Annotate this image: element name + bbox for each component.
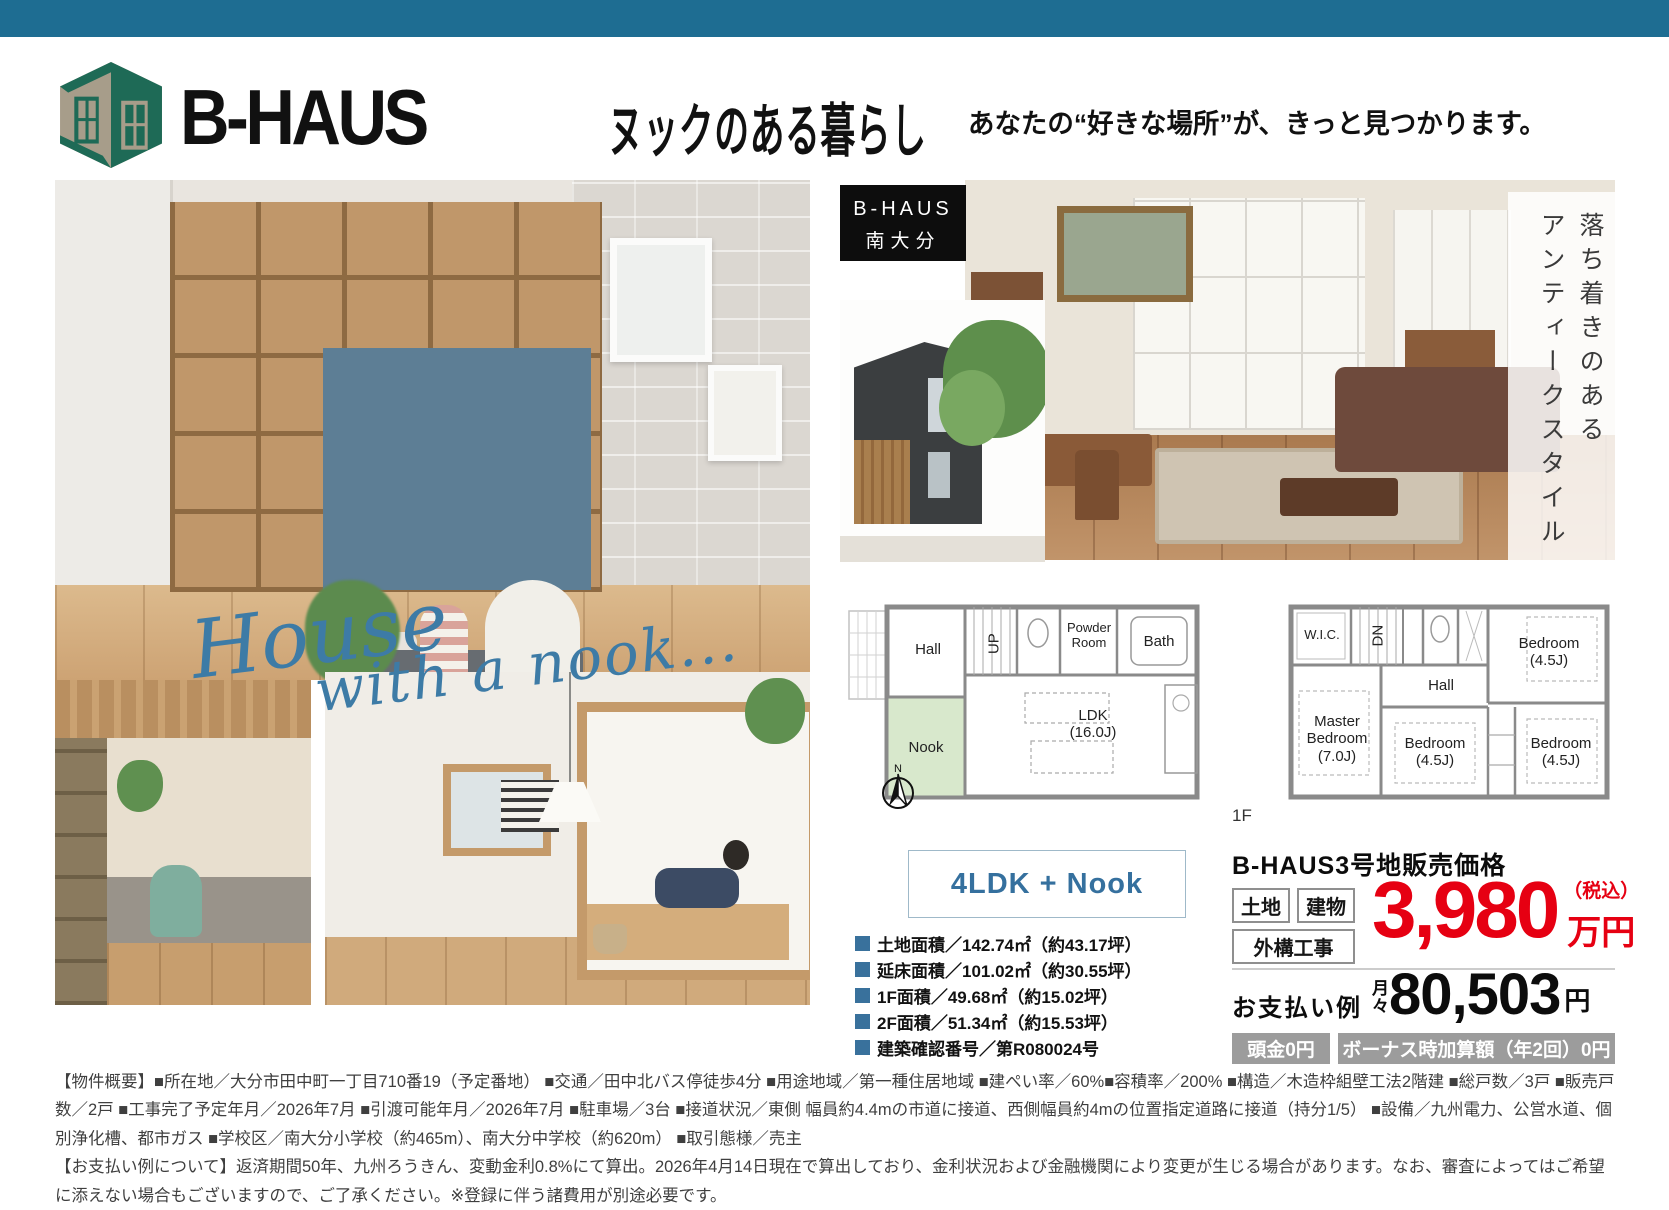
property-overview-text: 【物件概要】■所在地／大分市田中町一丁目710番19（予定番地） ■交通／田中北… xyxy=(55,1068,1617,1153)
lamp-cord-decor xyxy=(569,672,571,784)
room-label-bedroom-3-name: Bedroom xyxy=(1531,735,1592,752)
page-subtitle: あなたの“好きな場所”が、きっと見つかります。 xyxy=(968,102,1546,141)
spec-list: 土地面積／142.74㎡（約43.17坪） 延床面積／101.02㎡（約30.5… xyxy=(855,930,1155,1060)
location-badge-area: 南大分 xyxy=(840,226,966,253)
top-accent-bar xyxy=(0,0,1669,37)
person-figure-decor xyxy=(655,868,739,908)
room-label-bedroom-1-size: (4.5J) xyxy=(1530,652,1568,669)
payment-example-label: お支払い例 xyxy=(1232,988,1362,1023)
spec-item: 建築確認番号／第R080024号 xyxy=(855,1034,1155,1060)
monthly-prefix-2: 々 xyxy=(1372,997,1389,1016)
room-label-ldk-size: (16.0J) xyxy=(1070,724,1117,741)
room-label-master: MasterBedroom(7.0J) xyxy=(1295,713,1379,765)
square-bullet-icon xyxy=(855,936,870,951)
ground-decor xyxy=(840,536,1045,562)
room-label-up: UP xyxy=(985,627,1002,661)
price-side: （税込） 万円 xyxy=(1563,876,1639,954)
wood-siding-decor xyxy=(854,440,910,524)
spec-item-text: 2F面積／51.34㎡（約15.53坪） xyxy=(877,1009,1118,1034)
person-head-decor xyxy=(723,840,749,870)
room-label-master-l2: Bedroom xyxy=(1307,730,1368,747)
room-label-bedroom-3: Bedroom(4.5J) xyxy=(1519,735,1603,770)
child-figure-decor xyxy=(420,605,468,680)
room-label-bedroom-1-name: Bedroom xyxy=(1519,635,1580,652)
location-badge: B-HAUS 南大分 xyxy=(840,185,966,261)
room-label-bedroom-2: Bedroom(4.5J) xyxy=(1393,735,1477,770)
bonus-payment-badge: ボーナス時加算額（年2回）0円 xyxy=(1338,1033,1615,1064)
room-label-hall-2f: Hall xyxy=(1411,677,1471,694)
property-overview: 【物件概要】■所在地／大分市田中町一丁目710番19（予定番地） ■交通／田中北… xyxy=(55,1068,1617,1210)
blue-nook-panel-decor xyxy=(323,348,591,590)
price-unit: 万円 xyxy=(1567,905,1635,954)
room-label-powder: Powder Room xyxy=(1061,621,1117,651)
floor-decor xyxy=(107,943,311,1005)
bench-decor xyxy=(107,877,311,943)
room-label-dn: DN xyxy=(1369,619,1386,653)
page-title: ヌックのある暮らし xyxy=(608,84,927,168)
brand-text: B-HAUS xyxy=(180,72,426,163)
shelf-decor xyxy=(55,738,107,1005)
wood-ceiling-decor xyxy=(55,680,311,738)
compass-icon: N xyxy=(876,762,920,814)
style-caption-line2: アンティークスタイル xyxy=(1538,212,1563,552)
window-decor xyxy=(928,452,950,498)
price-tax-note: （税込） xyxy=(1563,876,1639,903)
room-label-bath: Bath xyxy=(1133,633,1185,650)
room-label-master-size: (7.0J) xyxy=(1318,748,1356,765)
floorplan-2f: W.I.C. DN Hall Bedroom(4.5J) MasterBedro… xyxy=(1283,595,1615,807)
plan-type-box: 4LDK + Nook xyxy=(908,850,1186,918)
spec-item: 2F面積／51.34㎡（約15.53坪） xyxy=(855,1008,1155,1034)
square-bullet-icon xyxy=(855,988,870,1003)
mother-figure-decor xyxy=(485,580,580,680)
room-label-nook: Nook xyxy=(895,739,957,756)
spec-item-text: 建築確認番号／第R080024号 xyxy=(877,1035,1099,1060)
tree-decor xyxy=(939,370,1005,446)
spec-item: 1F面積／49.68㎡（約15.02坪） xyxy=(855,982,1155,1008)
price-amount: 3,980 xyxy=(1372,872,1557,948)
photo-house-exterior xyxy=(840,300,1045,562)
down-payment-badge: 頭金0円 xyxy=(1232,1033,1330,1064)
floor-label-1f: 1F xyxy=(1232,806,1252,826)
spec-item: 土地面積／142.74㎡（約43.17坪） xyxy=(855,930,1155,956)
monthly-unit: 円 xyxy=(1564,981,1590,1018)
plant-decor xyxy=(745,678,805,744)
price-tag-building: 建物 xyxy=(1297,888,1355,923)
door-decor xyxy=(55,180,173,588)
payment-note-text: 【お支払い例について】返済期間50年、九州ろうきん、変動金利0.8%にて算出。2… xyxy=(55,1153,1617,1210)
spec-item-text: 延床面積／101.02㎡（約30.55坪） xyxy=(877,957,1142,982)
photo-reading-nook xyxy=(55,680,311,1005)
spec-item-text: 土地面積／142.74㎡（約43.17坪） xyxy=(877,931,1142,956)
room-label-bedroom-1: Bedroom(4.5J) xyxy=(1507,635,1591,670)
price-tag-land: 土地 xyxy=(1232,888,1290,923)
picture-frame-decor xyxy=(708,365,782,461)
picture-frame-decor xyxy=(610,238,712,362)
room-label-bedroom-2-size: (4.5J) xyxy=(1416,752,1454,769)
room-label-hall: Hall xyxy=(895,641,961,658)
style-caption-line1: 落ち着きのある xyxy=(1577,212,1602,450)
chair-decor xyxy=(1075,450,1119,520)
monthly-payment: 月々 80,503 円 xyxy=(1372,966,1590,1024)
square-bullet-icon xyxy=(855,1040,870,1055)
square-bullet-icon xyxy=(855,1014,870,1029)
room-label-master-l1: Master xyxy=(1314,713,1360,730)
square-bullet-icon xyxy=(855,962,870,977)
room-label-bedroom-2-name: Bedroom xyxy=(1405,735,1466,752)
monthly-prefix: 月々 xyxy=(1372,980,1389,1016)
painting-decor xyxy=(1057,206,1193,302)
coffee-table-decor xyxy=(1280,478,1398,516)
room-label-ldk-name: LDK xyxy=(1078,707,1107,724)
basket-decor xyxy=(593,924,627,954)
plan-type-label: 4LDK + Nook xyxy=(951,868,1143,901)
monthly-amount: 80,503 xyxy=(1389,966,1560,1024)
photo-nook-family xyxy=(55,180,810,680)
price-group: 3,980 （税込） 万円 xyxy=(1372,872,1639,954)
style-caption-vertical: 落ち着きのある アンティークスタイル xyxy=(1508,192,1616,560)
spec-item: 延床面積／101.02㎡（約30.55坪） xyxy=(855,956,1155,982)
plant-decor xyxy=(305,580,400,680)
monthly-prefix-1: 月 xyxy=(1372,979,1389,998)
svg-text:N: N xyxy=(894,763,902,775)
person-figure-decor xyxy=(150,865,202,937)
room-label-ldk: LDK(16.0J) xyxy=(1055,707,1131,742)
spec-item-text: 1F面積／49.68㎡（約15.02坪） xyxy=(877,983,1118,1008)
location-badge-brand: B-HAUS xyxy=(840,198,966,221)
price-tag-exterior: 外構工事 xyxy=(1232,929,1355,964)
room-label-bedroom-3-size: (4.5J) xyxy=(1542,752,1580,769)
room-label-wic: W.I.C. xyxy=(1297,628,1347,643)
bhaus-logo-icon xyxy=(60,62,162,168)
photo-window-nook xyxy=(325,672,810,1005)
